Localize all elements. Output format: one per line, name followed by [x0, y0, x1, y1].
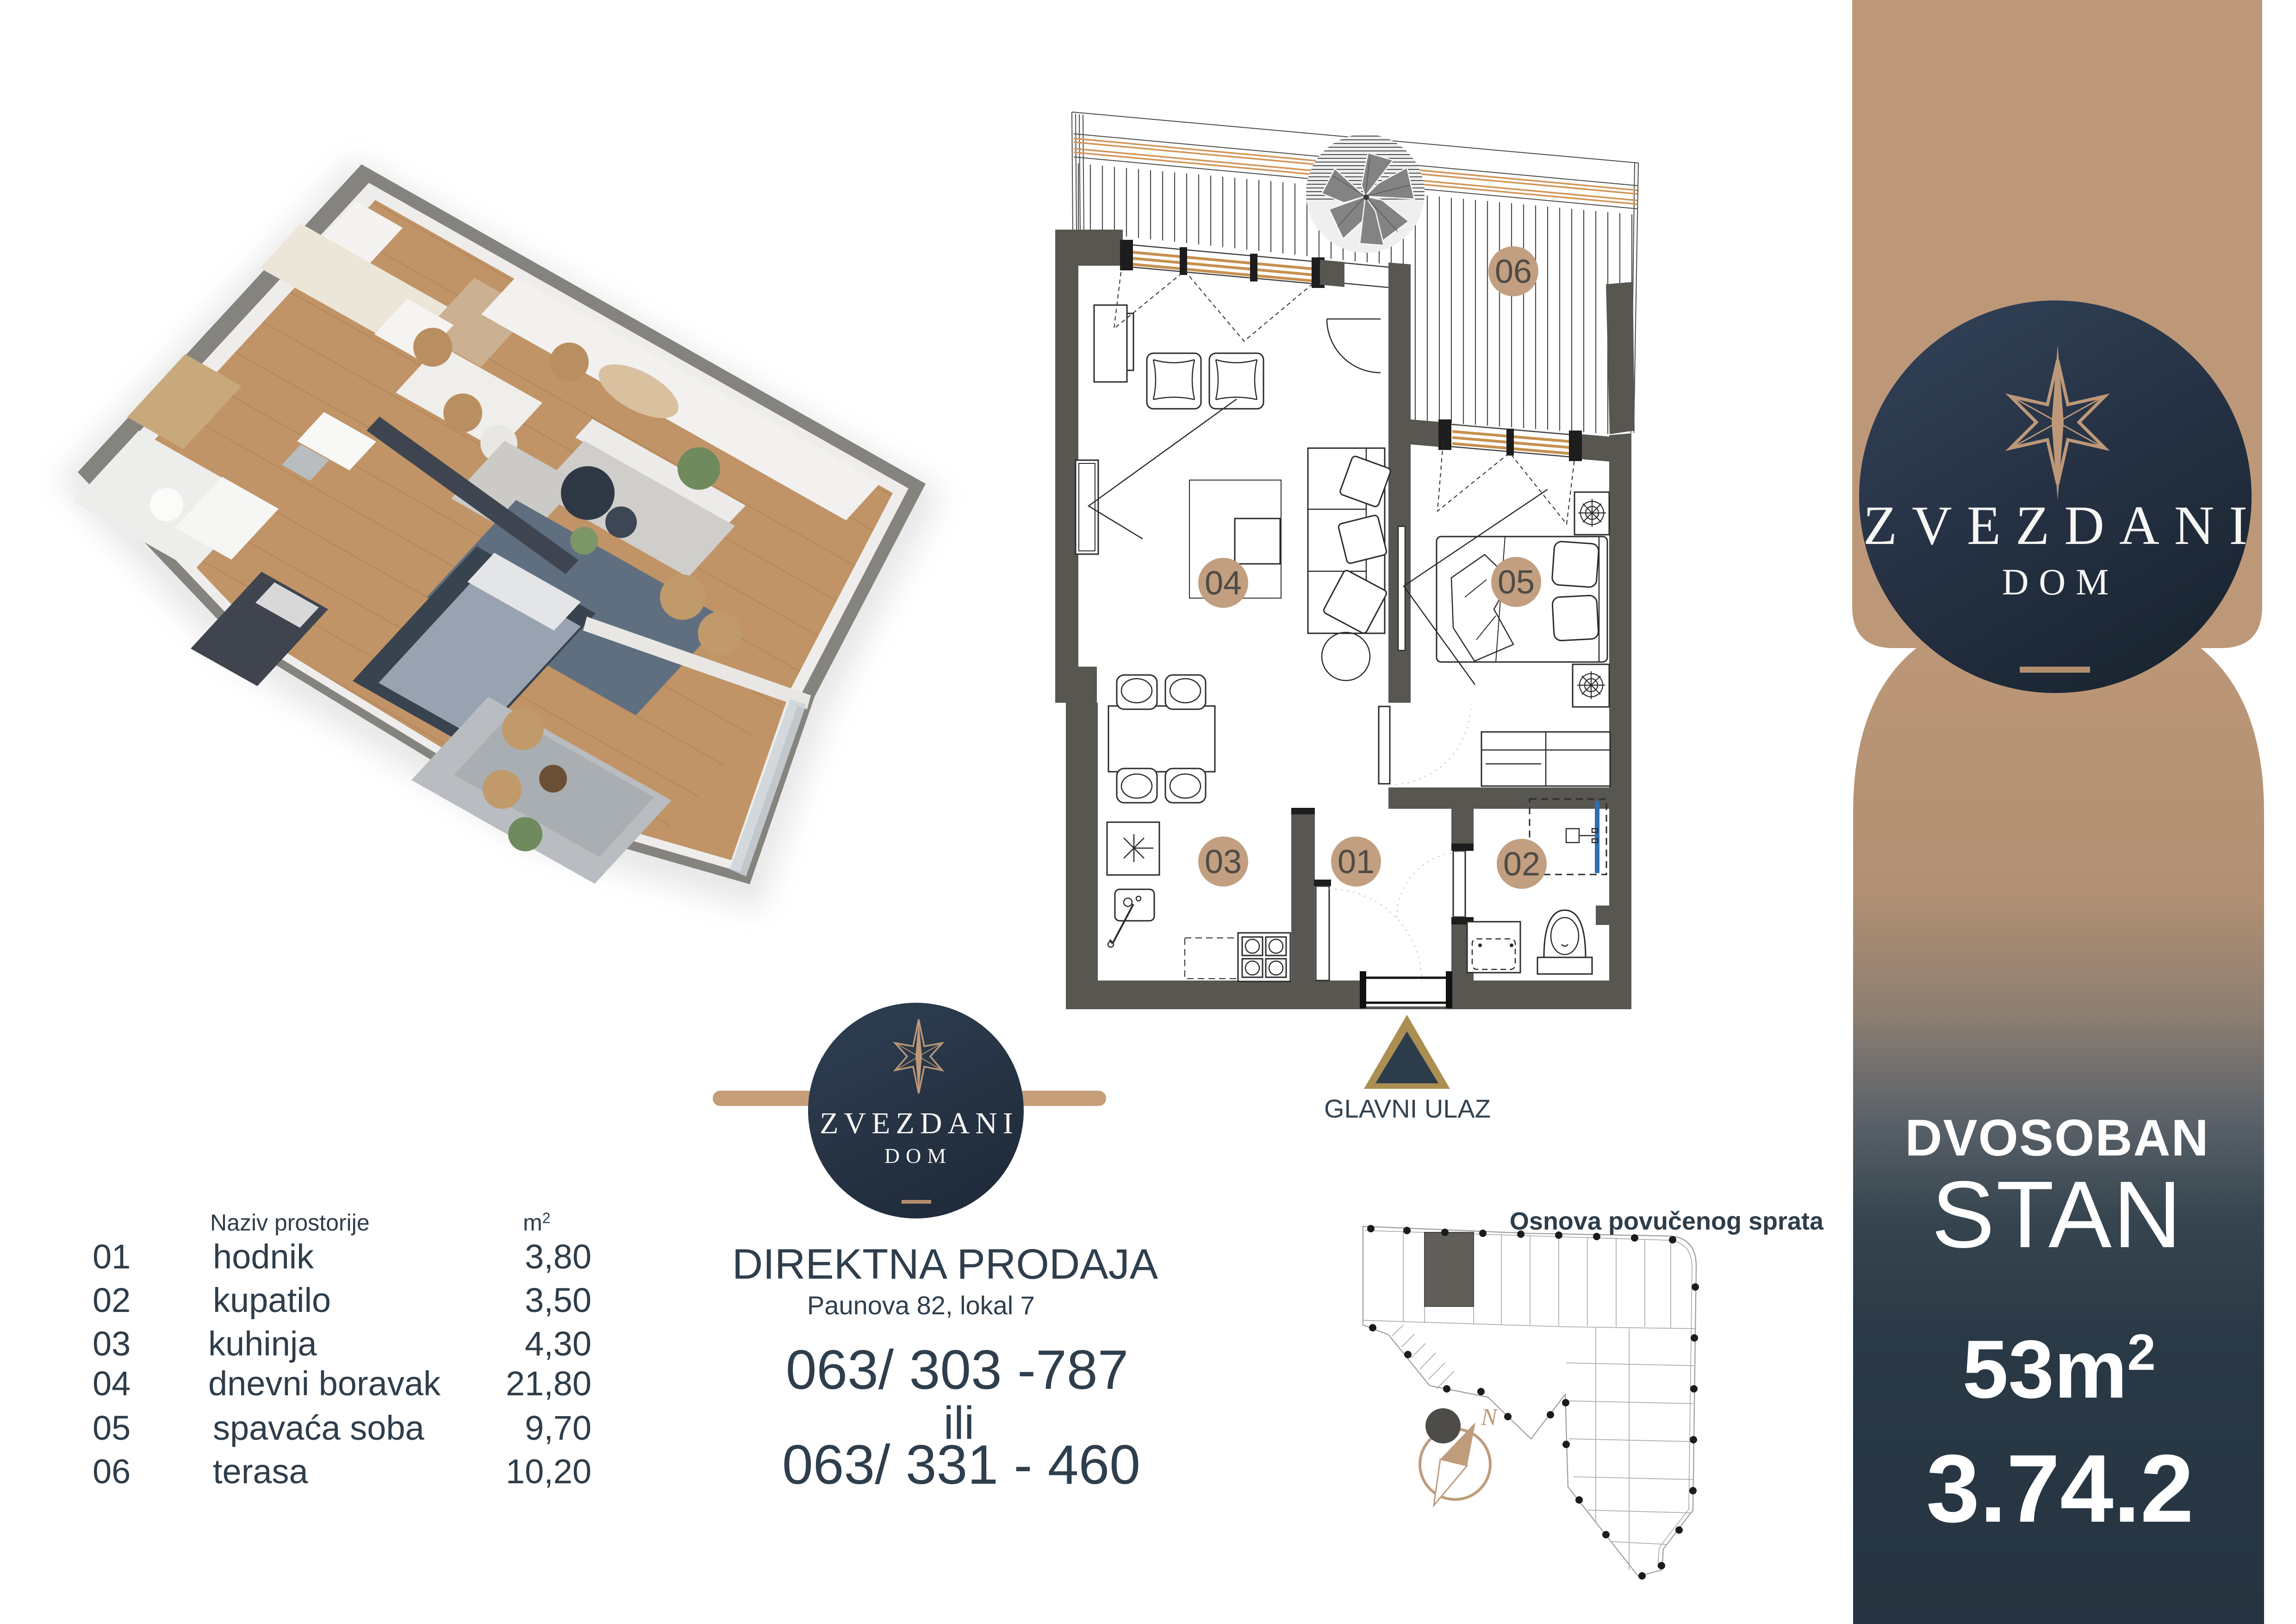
- svg-text:dnevni boravak: dnevni boravak: [208, 1364, 441, 1403]
- svg-text:063/ 331 - 460: 063/ 331 - 460: [782, 1434, 1140, 1496]
- svg-text:STAN: STAN: [1931, 1162, 2183, 1268]
- svg-text:m2: m2: [523, 1210, 550, 1236]
- svg-text:03: 03: [93, 1324, 131, 1363]
- svg-text:N: N: [1481, 1404, 1499, 1430]
- svg-text:53m2: 53m2: [1962, 1323, 2155, 1415]
- svg-text:spavaća soba: spavaća soba: [213, 1409, 424, 1447]
- svg-text:ZVEZDANI: ZVEZDANI: [1863, 494, 2263, 556]
- svg-text:10,20: 10,20: [506, 1452, 591, 1491]
- svg-text:GLAVNI ULAZ: GLAVNI ULAZ: [1324, 1094, 1491, 1123]
- svg-text:06: 06: [93, 1452, 131, 1491]
- svg-text:terasa: terasa: [213, 1452, 309, 1491]
- svg-text:03: 03: [1205, 843, 1242, 881]
- svg-text:01: 01: [93, 1237, 131, 1276]
- svg-text:hodnik: hodnik: [213, 1237, 314, 1276]
- svg-text:3,80: 3,80: [525, 1237, 591, 1276]
- svg-text:05: 05: [93, 1409, 131, 1447]
- svg-text:DIREKTNA PRODAJA: DIREKTNA PRODAJA: [732, 1241, 1158, 1288]
- svg-text:DOM: DOM: [884, 1144, 952, 1168]
- svg-text:Naziv prostorije: Naziv prostorije: [210, 1210, 370, 1236]
- svg-text:4,30: 4,30: [525, 1324, 591, 1363]
- svg-text:kupatilo: kupatilo: [213, 1281, 331, 1319]
- svg-text:9,70: 9,70: [525, 1409, 591, 1447]
- svg-text:05: 05: [1498, 564, 1535, 601]
- svg-text:3.74.2: 3.74.2: [1926, 1435, 2194, 1543]
- svg-text:01: 01: [1338, 843, 1375, 881]
- svg-text:ZVEZDANI: ZVEZDANI: [820, 1106, 1019, 1140]
- svg-text:06: 06: [1495, 253, 1532, 290]
- svg-text:063/ 303 -787: 063/ 303 -787: [786, 1339, 1129, 1401]
- svg-text:02: 02: [1503, 846, 1540, 883]
- svg-text:04: 04: [1205, 565, 1242, 602]
- svg-text:21,80: 21,80: [506, 1364, 591, 1403]
- svg-text:Osnova povučenog sprata: Osnova povučenog sprata: [1510, 1207, 1824, 1235]
- svg-text:DVOSOBAN: DVOSOBAN: [1905, 1109, 2209, 1167]
- svg-text:kuhinja: kuhinja: [208, 1324, 317, 1363]
- svg-text:DOM: DOM: [2002, 562, 2119, 603]
- svg-text:04: 04: [93, 1364, 131, 1403]
- svg-text:Paunova 82, lokal 7: Paunova 82, lokal 7: [807, 1291, 1035, 1320]
- svg-text:3,50: 3,50: [525, 1281, 591, 1319]
- svg-text:02: 02: [93, 1281, 131, 1319]
